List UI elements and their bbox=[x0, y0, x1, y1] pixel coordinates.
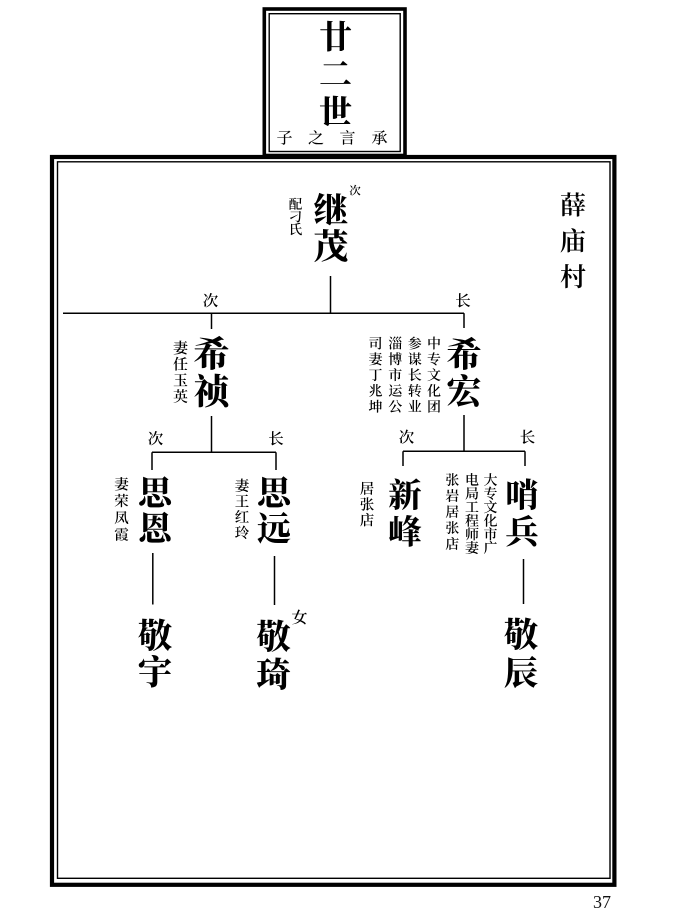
svg-text:37: 37 bbox=[593, 892, 611, 912]
